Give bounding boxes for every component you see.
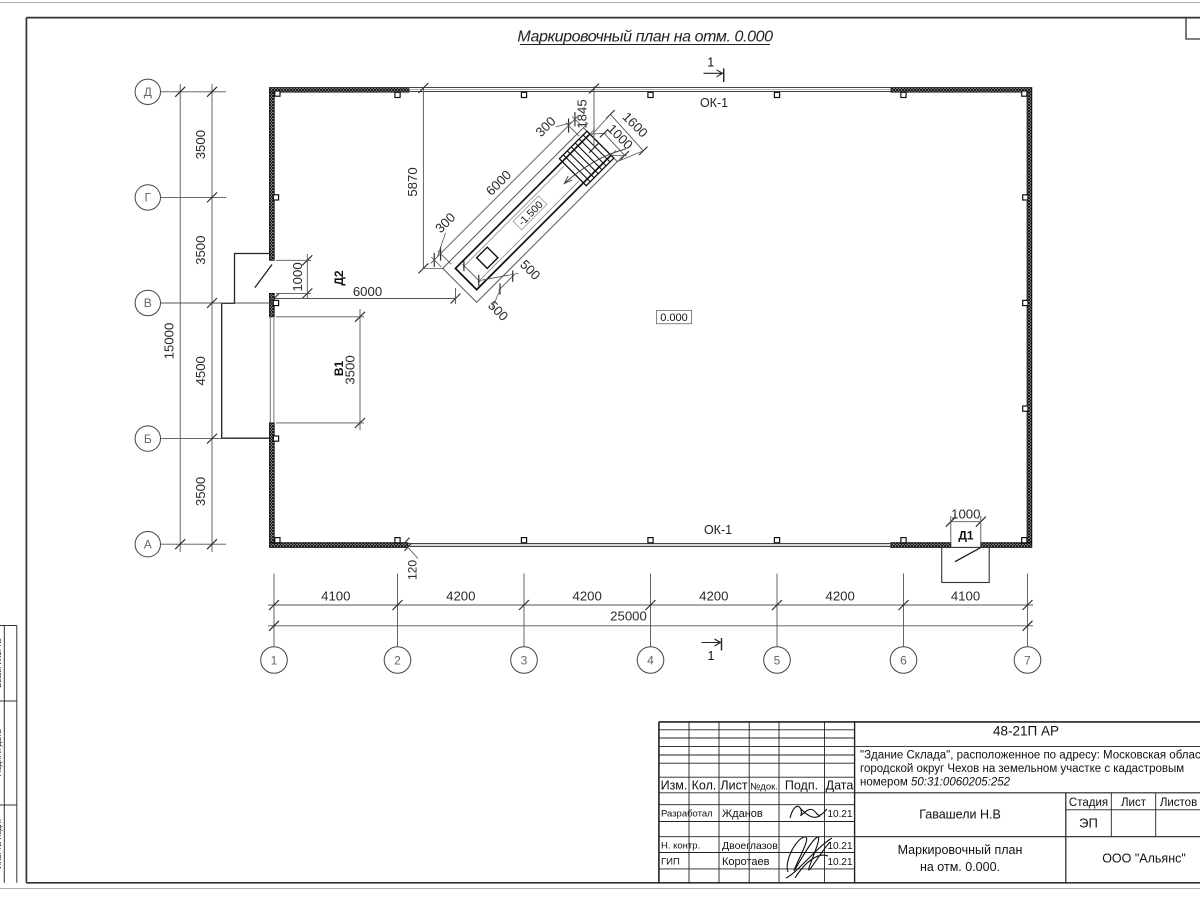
svg-text:Маркировочный план на отм. 0.0: Маркировочный план на отм. 0.000: [517, 29, 773, 46]
svg-text:4100: 4100: [951, 589, 980, 604]
svg-text:Подп.: Подп.: [785, 779, 818, 793]
svg-text:В: В: [144, 296, 152, 310]
svg-text:Лист: Лист: [1121, 797, 1147, 809]
svg-text:1: 1: [271, 653, 278, 667]
svg-text:1845: 1845: [575, 99, 590, 128]
svg-text:Гавашели Н.В: Гавашели Н.В: [919, 808, 1001, 822]
svg-text:Д1: Д1: [958, 529, 974, 543]
svg-text:Лист: Лист: [720, 779, 747, 793]
svg-text:4200: 4200: [446, 589, 475, 604]
svg-text:Инв. № подл.: Инв. № подл.: [0, 819, 3, 869]
svg-text:№док.: №док.: [750, 781, 778, 792]
svg-text:4200: 4200: [699, 589, 728, 604]
svg-text:"Здание Склада", расположенное: "Здание Склада", расположенное по адресу…: [860, 750, 1200, 762]
svg-text:10.21: 10.21: [827, 857, 852, 868]
svg-text:Изм.: Изм.: [661, 779, 688, 793]
svg-text:ОК-1: ОК-1: [704, 523, 732, 537]
svg-text:5870: 5870: [405, 167, 420, 196]
svg-text:4: 4: [647, 653, 654, 667]
svg-text:3500: 3500: [343, 355, 358, 384]
svg-text:номером 50:31:0060205:252: номером 50:31:0060205:252: [860, 776, 1011, 788]
svg-text:4200: 4200: [573, 589, 602, 604]
svg-text:Подп. и дата: Подп. и дата: [0, 729, 3, 777]
svg-text:3500: 3500: [193, 477, 208, 506]
svg-text:ГИП: ГИП: [661, 857, 680, 868]
svg-text:1: 1: [707, 56, 714, 70]
svg-text:6000: 6000: [353, 284, 382, 299]
svg-text:4200: 4200: [826, 589, 855, 604]
svg-text:7: 7: [1024, 653, 1031, 667]
svg-text:120: 120: [406, 560, 420, 580]
svg-text:на отм. 0.000.: на отм. 0.000.: [920, 860, 1000, 874]
svg-text:Г: Г: [145, 191, 152, 205]
svg-text:Маркировочный план: Маркировочный план: [898, 843, 1023, 857]
svg-text:10.21: 10.21: [827, 841, 852, 852]
svg-text:25000: 25000: [610, 609, 647, 624]
svg-text:3500: 3500: [193, 130, 208, 159]
svg-text:1: 1: [708, 649, 715, 663]
svg-text:Д2: Д2: [332, 270, 346, 286]
svg-text:48-21П АР: 48-21П АР: [993, 724, 1059, 739]
svg-text:Жданов: Жданов: [722, 808, 763, 820]
svg-text:ЭП: ЭП: [1079, 816, 1098, 831]
svg-text:4100: 4100: [321, 589, 350, 604]
svg-text:ОК-1: ОК-1: [700, 96, 728, 110]
svg-text:Б: Б: [144, 432, 152, 446]
svg-text:городской округ Чехов на земел: городской округ Чехов на земельном участ…: [860, 763, 1184, 775]
svg-text:Кол.: Кол.: [692, 779, 717, 793]
svg-text:ООО "Альянс": ООО "Альянс": [1102, 852, 1186, 866]
svg-text:6: 6: [900, 653, 907, 667]
svg-text:5: 5: [774, 653, 781, 667]
svg-text:Н. контр.: Н. контр.: [661, 841, 700, 852]
svg-text:Стадия: Стадия: [1069, 797, 1108, 809]
svg-text:Дата: Дата: [826, 779, 854, 793]
svg-text:А: А: [144, 537, 152, 551]
svg-text:4500: 4500: [193, 356, 208, 385]
svg-text:15000: 15000: [162, 323, 177, 360]
svg-text:0.000: 0.000: [660, 312, 688, 324]
svg-text:3: 3: [521, 653, 528, 667]
svg-text:10.21: 10.21: [827, 809, 852, 820]
svg-text:2: 2: [394, 653, 401, 667]
svg-text:Разработал: Разработал: [661, 809, 713, 820]
svg-text:Двоеглазов: Двоеглазов: [722, 840, 778, 852]
svg-text:Листов: Листов: [1160, 797, 1197, 809]
svg-text:3500: 3500: [193, 236, 208, 265]
svg-text:1000: 1000: [951, 507, 980, 522]
svg-text:Взам. инв. №: Взам. инв. №: [0, 638, 3, 688]
svg-text:Коротаев: Коротаев: [722, 856, 770, 868]
svg-text:1000: 1000: [290, 262, 305, 291]
svg-text:Д: Д: [144, 85, 152, 99]
